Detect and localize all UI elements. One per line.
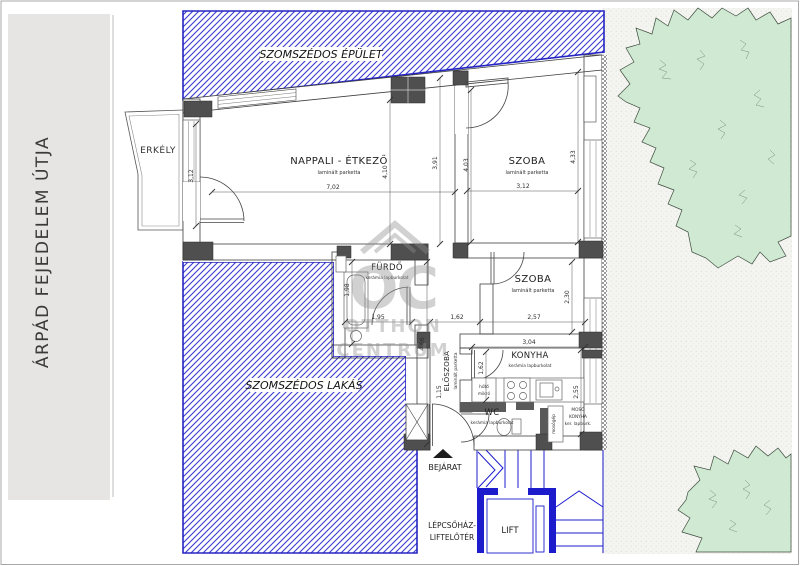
stairwell-label-line2: LIFTELŐTÉR: [430, 533, 475, 542]
floor-plan-canvas: ÁRPÁD FEJEDELEM ÚTJA SZOMSZÉDOS ÉPÜLET S…: [0, 0, 800, 566]
pier-window-divider: [582, 350, 602, 358]
dim-living-height-mid: 4,10: [382, 165, 389, 179]
laundry-label-line1: MOSÓ: [571, 406, 585, 413]
watermark-monogram: OC: [349, 254, 437, 322]
laundry-floor: ker. lapburk.: [565, 421, 592, 427]
pier-top-left: [184, 101, 212, 117]
kitchen-label: KONYHA: [511, 351, 548, 361]
bedroom1-door-opening: [455, 86, 468, 134]
kitchen-floor: kerámia lapburkolat: [508, 362, 551, 369]
wc-floor: kerámia lapburkolat: [470, 419, 513, 426]
dim-living-height-right: 3,91: [432, 156, 439, 170]
dim-bedroom2-height: 2,30: [564, 290, 571, 304]
dim-living-width: 7,02: [326, 184, 340, 191]
dim-bedroom1-right: 4,33: [570, 150, 577, 164]
kitchen-counter: [472, 378, 584, 402]
street-strip: ÁRPÁD FEJEDELEM ÚTJA: [8, 14, 113, 500]
floor-plan-page: ÁRPÁD FEJEDELEM ÚTJA SZOMSZÉDOS ÉPÜLET S…: [0, 0, 800, 566]
balcony-door-opening: [183, 182, 200, 221]
bedroom1-label: SZOBA: [509, 156, 546, 167]
washer-label: mosógép: [550, 414, 557, 434]
balcony-label: ERKÉLY: [140, 144, 176, 156]
stairwell-label-line1: LÉPCSŐHÁZ-: [428, 521, 476, 530]
dim-kitchen-depth-right: 2,55: [573, 385, 580, 399]
lift-door-opening: [498, 488, 528, 495]
lift-shaft-interior: [484, 495, 549, 553]
pier-right-kitchen: [579, 332, 602, 348]
fridge-label: hűtő: [479, 384, 489, 390]
microwave-label: mikró: [478, 390, 491, 397]
laundry-label-line2: KONYHA: [569, 414, 587, 420]
airshaft-box: [406, 404, 428, 440]
window-bedroom1: [584, 140, 602, 238]
window-kitchen: [584, 358, 602, 404]
street-name: ÁRPÁD FEJEDELEM ÚTJA: [31, 136, 53, 368]
chimney-block: [391, 77, 425, 103]
neighbor-building-label: SZOMSZÉDOS ÉPÜLET: [259, 48, 383, 61]
dim-entryhall-width: 1,15: [436, 385, 443, 399]
pier-right-mid: [579, 241, 603, 258]
dim-kitchen-width: 3,04: [522, 339, 536, 346]
bathroom-radiator: [336, 256, 346, 272]
lift-label: LIFT: [501, 526, 519, 536]
watermark-line2: CENTRUM: [336, 340, 449, 361]
pier-bottom-left: [183, 242, 213, 260]
living-room-floor: laminált parketta: [318, 169, 361, 176]
wc-label: WC: [485, 408, 500, 418]
pier-bedroom1-bottom: [453, 243, 468, 258]
entrance-label: BEJÁRAT: [428, 461, 461, 472]
dim-bedroom2-width: 2,57: [527, 314, 541, 321]
dim-living-window: 3,12: [188, 169, 195, 183]
window-bedroom1-niche: [584, 76, 596, 122]
bedroom1-floor: laminált parketta: [506, 169, 549, 176]
street-band: [8, 14, 110, 500]
dim-bedroom1-width: 3,12: [516, 183, 530, 190]
dim-bedroom1-left: 4,03: [463, 158, 470, 172]
living-room-label: NAPPALI - ÉTKEZŐ: [290, 153, 388, 167]
dim-hall-width: 1,62: [450, 314, 464, 321]
bedroom2-label: SZOBA: [515, 274, 552, 285]
bedroom2-floor: laminált parketta: [512, 287, 555, 294]
pier-bottom-right: [580, 432, 602, 450]
watermark-line1: OTTHON: [344, 316, 442, 337]
entryhall-floor: laminált parketta: [452, 352, 459, 389]
neighbor-flat-label: SZOMSZÉDOS LAKÁS: [245, 379, 362, 392]
dim-kitchen-depth-left: 1,62: [478, 361, 485, 375]
